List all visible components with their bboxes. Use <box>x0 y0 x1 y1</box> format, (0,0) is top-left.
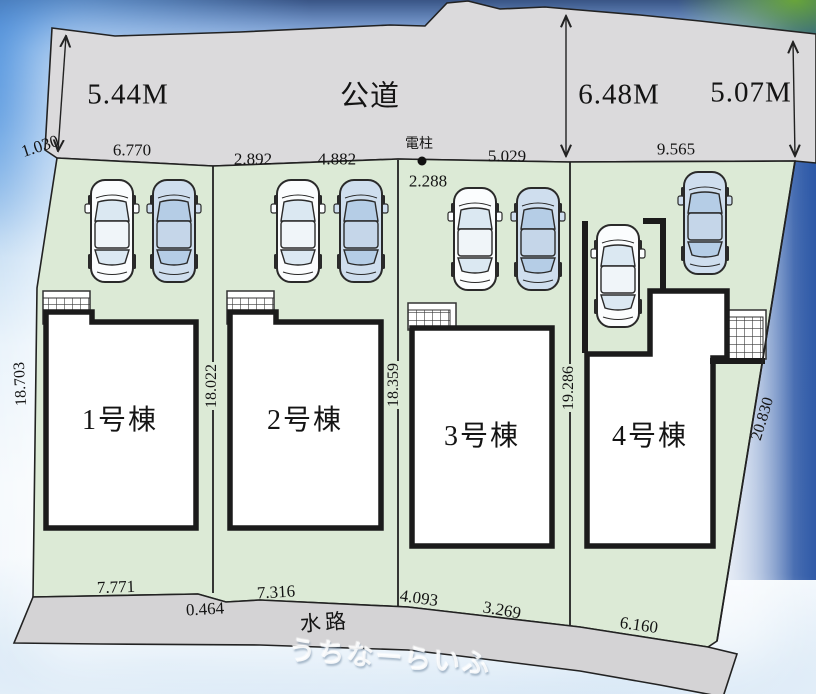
car-icon-blue <box>678 172 732 274</box>
frontage-dim-2: 6.770 <box>113 142 151 159</box>
car-icon-white <box>591 225 645 327</box>
car-icon-blue <box>334 180 388 282</box>
car-icon-blue <box>511 188 565 290</box>
building-3-label: 3号棟 <box>444 423 520 451</box>
side-dim-lot23: 18.359 <box>386 361 402 409</box>
building-4-label: 4号棟 <box>612 423 688 451</box>
utility-pole-label: 電柱 <box>405 138 433 152</box>
bottom-dim-lot3-left: 4.093 <box>399 587 439 609</box>
waterway-label: 水路 <box>299 611 350 635</box>
car-icon-white <box>85 180 139 282</box>
site-plan-canvas: 5.44M 公道 6.48M 5.07M 1.030 6.770 2.892 4… <box>0 0 816 694</box>
frontage-dim-3: 2.892 <box>234 151 272 168</box>
road-width-center-label: 6.48M <box>578 81 660 110</box>
building-1-label: 1号棟 <box>82 407 158 435</box>
utility-pole-dot <box>418 157 427 166</box>
bottom-dim-lot1: 7.771 <box>97 578 136 596</box>
frontage-dim-6: 9.565 <box>657 141 695 158</box>
car-icon-white <box>448 188 502 290</box>
bottom-dim-step: 0.464 <box>185 600 224 619</box>
side-dim-left: 18.703 <box>12 362 30 407</box>
road-width-right-label: 5.07M <box>710 79 792 108</box>
car-icon-white <box>271 180 325 282</box>
road-width-left-label: 5.44M <box>87 81 169 110</box>
porch-4 <box>727 310 766 359</box>
side-dim-lot12: 18.022 <box>204 362 220 410</box>
side-dim-lot34: 19.286 <box>561 364 577 412</box>
bottom-dim-lot4: 6.160 <box>619 614 659 636</box>
road-name-label: 公道 <box>340 83 400 112</box>
utility-pole-distance: 2.288 <box>409 173 447 190</box>
frontage-dim-5: 5.029 <box>488 148 526 165</box>
building-2-label: 2号棟 <box>267 407 343 435</box>
car-icon-blue <box>147 180 201 282</box>
frontage-dim-4: 4.882 <box>318 151 356 168</box>
bottom-dim-lot2: 7.316 <box>256 583 295 602</box>
